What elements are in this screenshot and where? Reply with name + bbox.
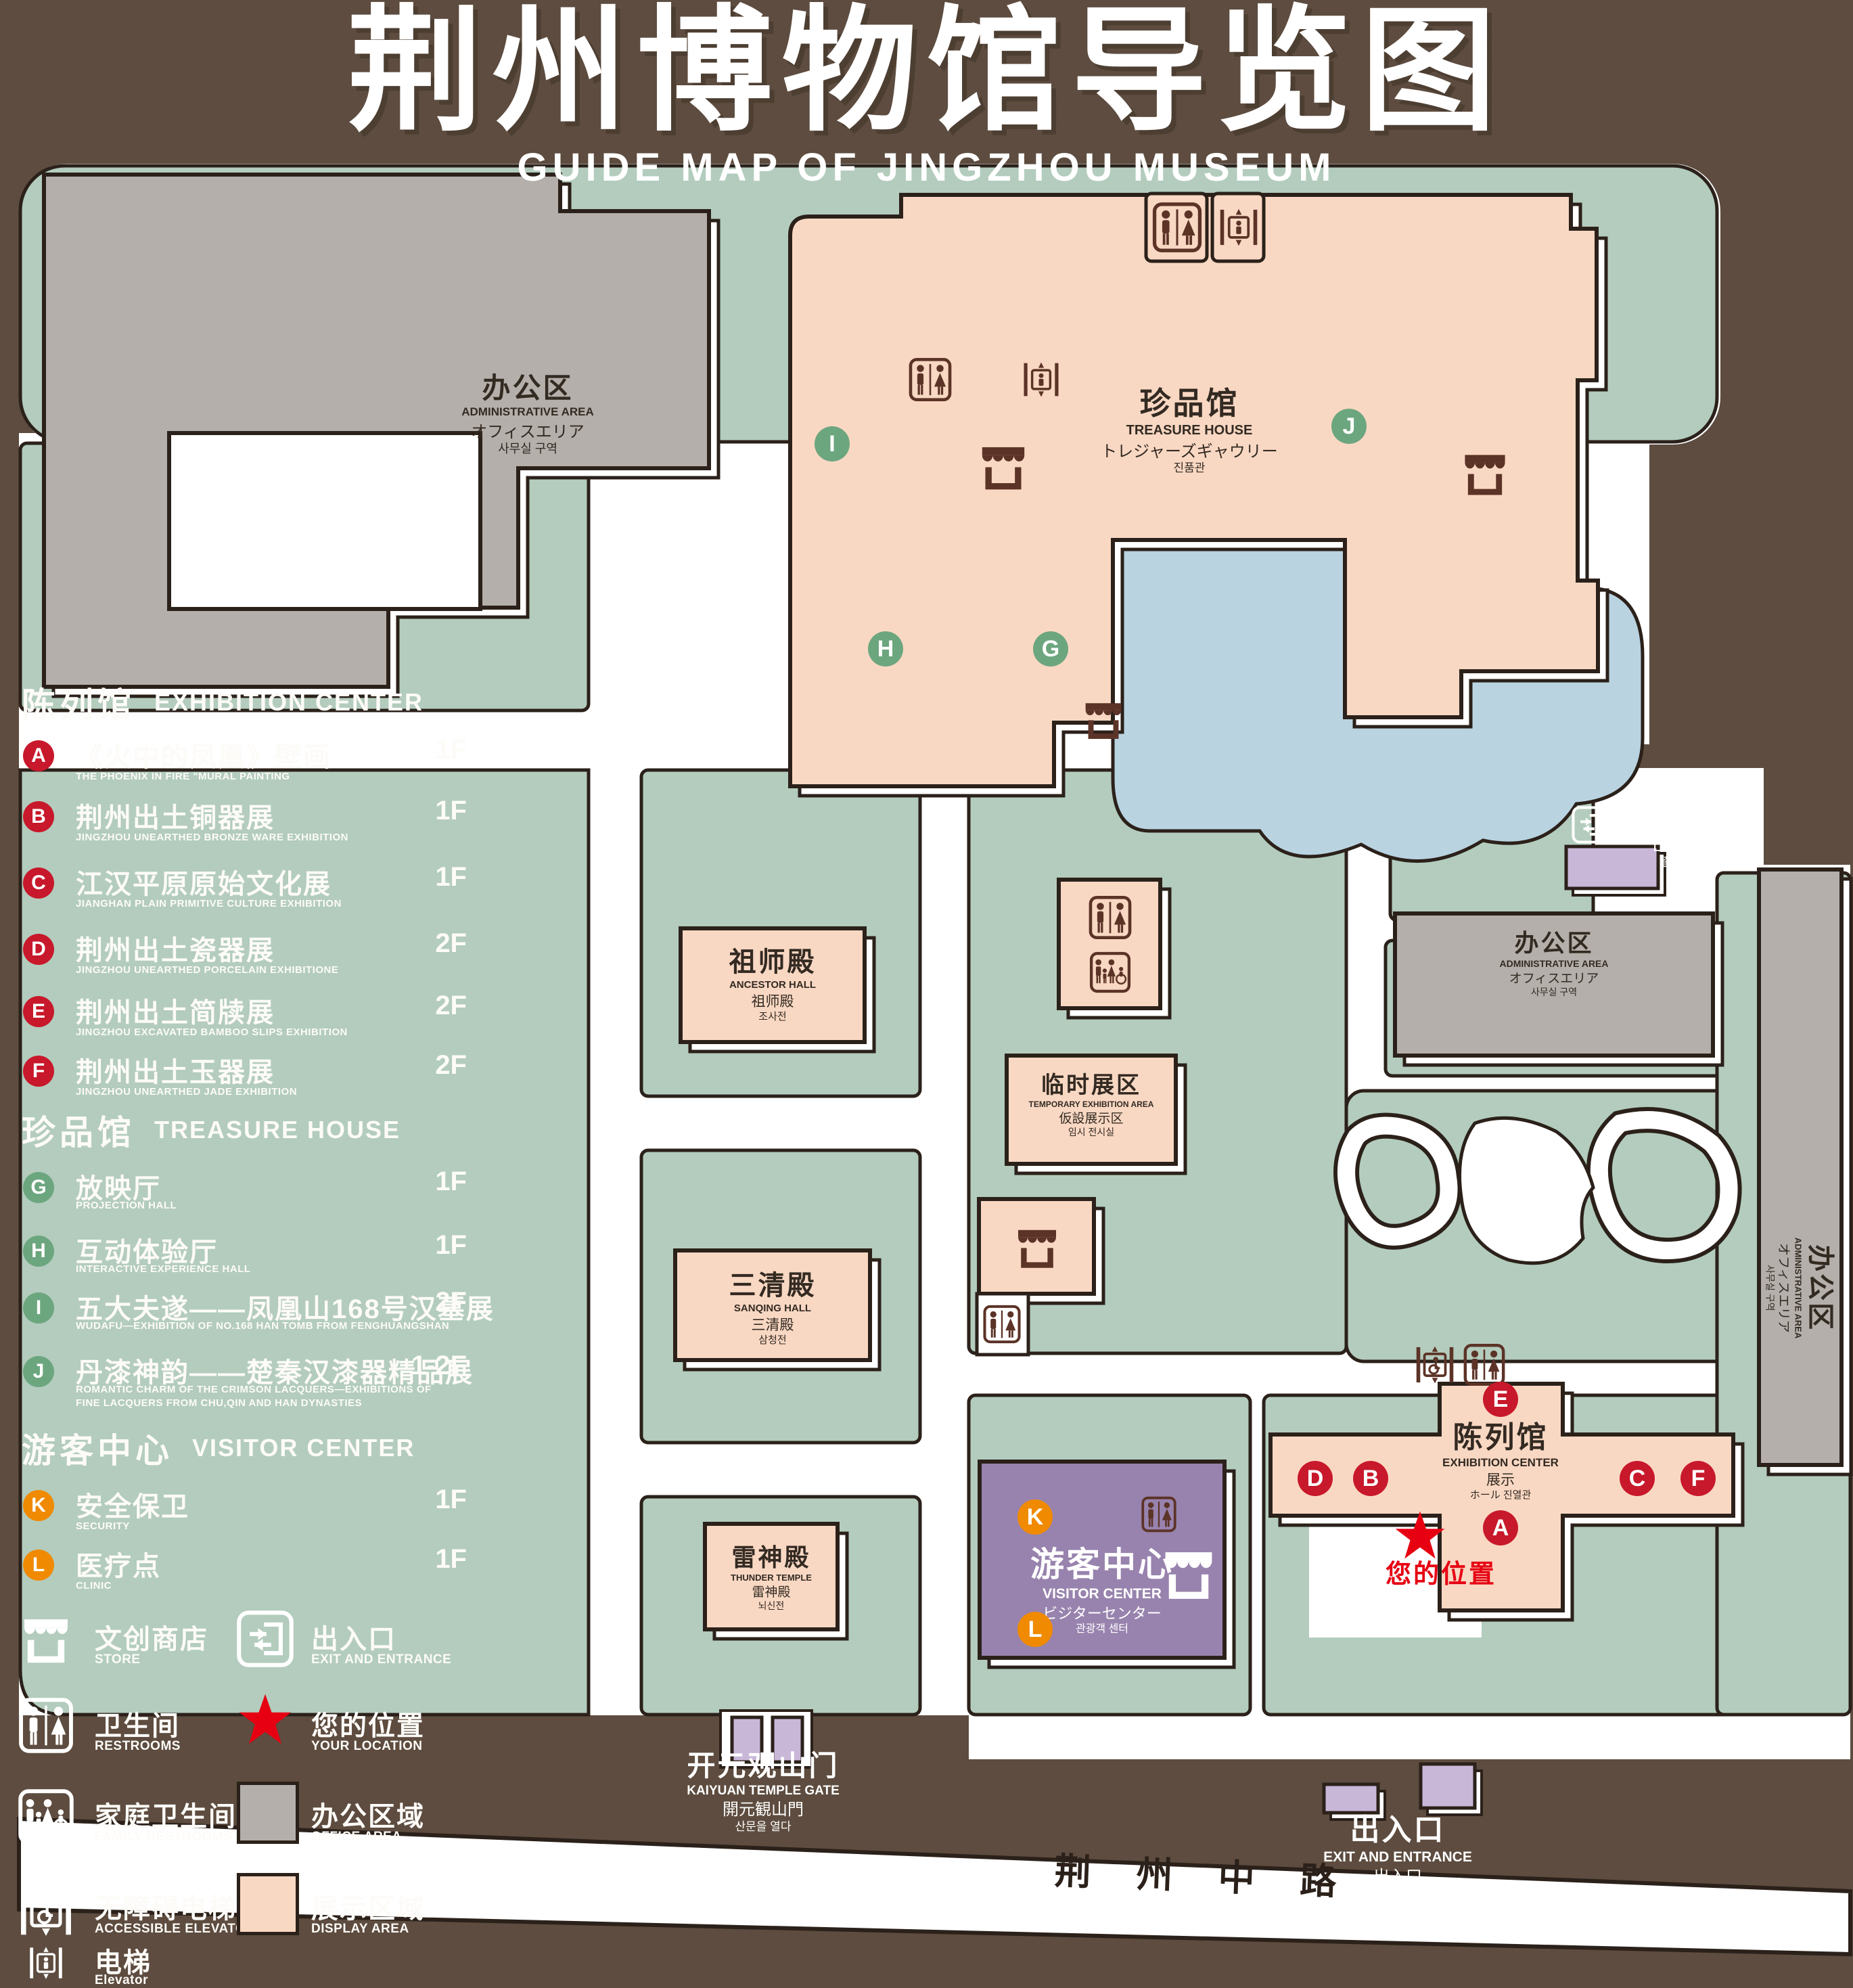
legend-restroom-en: RESTROOMS bbox=[95, 1739, 181, 1754]
legend-item-en: PROJECTION HALL bbox=[76, 1199, 455, 1213]
elevator-icon bbox=[1022, 357, 1061, 402]
legend-item-en: CLINIC bbox=[76, 1579, 455, 1593]
legend-section-visitor: 游客中心VISITOR CENTER bbox=[22, 1424, 415, 1472]
map-badge-J: J bbox=[1331, 409, 1367, 444]
restroom-icon bbox=[1141, 1493, 1177, 1536]
admin-mid-label: 办公区 ADMINISTRATIVE AREA オフィスエリア 사무실 구역 bbox=[1429, 928, 1679, 998]
legend-item-floor: 1F bbox=[386, 1485, 467, 1515]
restroom-icon bbox=[1151, 199, 1203, 256]
ancestor-hall-label: 祖师殿 ANCESTOR HALL 祖师殿 조사전 bbox=[681, 946, 865, 1023]
legend-item-zh: 荆州出土玉器展 bbox=[76, 1050, 275, 1089]
legend-item-zh: 荆州出土简牍展 bbox=[76, 991, 275, 1030]
map-badge-H: H bbox=[868, 631, 903, 667]
legend-display-zh: 展示区域 bbox=[311, 1887, 425, 1926]
legend-item-zh: 荆州出土瓷器展 bbox=[76, 928, 275, 968]
legend-item-en: JINGZHOU UNEARTHED JADE EXHIBITION bbox=[76, 1085, 455, 1099]
restroom-icon bbox=[982, 1301, 1022, 1348]
legend-item-zh: 《火中的凤凰》壁画 bbox=[76, 735, 331, 774]
legend-item-zh: 安全保卫 bbox=[76, 1485, 189, 1524]
legend-item-floor: 2F bbox=[386, 1287, 467, 1317]
legend-item-floor: 1F bbox=[386, 862, 467, 893]
legend-accessible-zh: 无障碍电梯 bbox=[95, 1887, 237, 1926]
legend-item-en: JINGZHOU UNEARTHED BRONZE WARE EXHIBITIO… bbox=[76, 831, 455, 844]
legend-item-zh: 荆州出土铜器展 bbox=[76, 796, 275, 835]
store-icon bbox=[1081, 697, 1126, 742]
legend-location-en: YOUR LOCATION bbox=[311, 1739, 422, 1754]
legend-item-floor: 2F bbox=[386, 1050, 467, 1081]
office-area-swatch bbox=[237, 1782, 299, 1844]
legend-item-floor: 1-2F bbox=[386, 1351, 467, 1381]
map-badge-G: G bbox=[1033, 631, 1068, 667]
legend-elevator-en: Elevator bbox=[95, 1973, 148, 1988]
legend-item-floor: 1F bbox=[386, 1544, 467, 1575]
legend-section-treasure: 珍品馆TREASURE HOUSE bbox=[22, 1106, 401, 1154]
exit-icon bbox=[1571, 805, 1610, 844]
legend-item-floor: 2F bbox=[386, 928, 467, 959]
thunder-temple-label: 雷神殿 THUNDER TEMPLE 雷神殿 뇌신전 bbox=[705, 1543, 838, 1612]
elevator-icon bbox=[18, 1945, 74, 1981]
accessible-elevator-icon bbox=[1414, 1340, 1456, 1390]
legend-badge-J: J bbox=[23, 1356, 54, 1387]
legend-item-floor: 2F bbox=[386, 991, 467, 1021]
legend-section-exhibition: 陈列馆EXHIBITION CENTER bbox=[22, 678, 424, 727]
legend-badge-C: C bbox=[23, 867, 54, 899]
restroom-icon bbox=[905, 357, 955, 402]
legend-item-en: JIANGHAN PLAIN PRIMITIVE CULTURE EXHIBIT… bbox=[76, 897, 455, 911]
page-title: 荆州博物馆导览图 bbox=[0, 4, 1853, 139]
legend-badge-I: I bbox=[23, 1292, 54, 1324]
legend-badge-F: F bbox=[23, 1056, 54, 1087]
kaiyuan-gate-label: 开元观山门 KAIYUAN TEMPLE GATE 開元観山門 산문을 열다 bbox=[648, 1748, 878, 1834]
legend-office-en: OFFICE AREA bbox=[311, 1830, 402, 1845]
map-badge-L: L bbox=[1017, 1612, 1053, 1647]
legend-item-floor: 1F bbox=[386, 735, 467, 765]
restroom-icon bbox=[1088, 890, 1133, 945]
family-restroom-icon bbox=[1089, 950, 1131, 995]
legend-store-en: STORE bbox=[95, 1652, 141, 1667]
legend-badge-K: K bbox=[23, 1490, 54, 1521]
legend-store-zh: 文创商店 bbox=[95, 1617, 208, 1656]
sanqing-hall-label: 三清殿 SANQING HALL 三清殿 삼청전 bbox=[675, 1269, 870, 1347]
elevator-icon bbox=[1218, 200, 1260, 254]
legend-item-en: SECURITY bbox=[76, 1520, 455, 1533]
legend-badge-H: H bbox=[23, 1236, 54, 1267]
legend-badge-E: E bbox=[23, 996, 54, 1027]
store-icon bbox=[1160, 1544, 1218, 1602]
exhibition-center-label: 陈列馆 EXHIBITION CENTER 展示 ホール 진열관 bbox=[1372, 1420, 1629, 1501]
legend-restroom-zh: 卫生间 bbox=[95, 1704, 180, 1743]
legend-item-floor: 1F bbox=[386, 796, 467, 826]
legend-badge-A: A bbox=[23, 740, 54, 771]
legend-item-en: JINGZHOU EXCAVATED BAMBOO SLIPS EXHIBITI… bbox=[76, 1026, 455, 1039]
map-badge-D: D bbox=[1298, 1461, 1333, 1496]
legend-exit-en: EXIT AND ENTRANCE bbox=[311, 1652, 451, 1667]
map-badge-E: E bbox=[1483, 1382, 1518, 1417]
map-badge-K: K bbox=[1017, 1499, 1053, 1535]
admin-east-label: 办公区 ADMINISTRATIVE AREA オフィスエリア 사무실 구역 bbox=[1764, 1146, 1837, 1430]
treasure-house-label: 珍品馆 TREASURE HOUSE トレジャーズギャウリー 진품관 bbox=[1054, 384, 1325, 476]
legend-display-en: DISPLAY AREA bbox=[311, 1922, 409, 1937]
map-badge-B: B bbox=[1353, 1461, 1388, 1496]
your-location-label: 您的位置 bbox=[1367, 1559, 1515, 1590]
store-icon bbox=[1460, 448, 1510, 498]
legend-badge-L: L bbox=[23, 1550, 54, 1581]
legend-exit-zh: 出入口 bbox=[311, 1617, 396, 1656]
legend-item-en: ROMANTIC CHARM OF THE CRIMSON LACQUERS—E… bbox=[76, 1383, 455, 1409]
map-badge-F: F bbox=[1680, 1461, 1716, 1496]
your-location-star bbox=[1394, 1510, 1446, 1562]
legend-item-zh: 江汉平原原始文化展 bbox=[76, 862, 331, 901]
legend-item-zh: 医疗点 bbox=[76, 1544, 161, 1583]
store-icon bbox=[977, 440, 1030, 493]
legend-item-en: JINGZHOU UNEARTHED PORCELAIN EXHIBITIONE bbox=[76, 964, 455, 977]
map-badge-A: A bbox=[1483, 1510, 1518, 1545]
legend-office-zh: 办公区域 bbox=[311, 1794, 425, 1834]
family-restroom-icon bbox=[18, 1786, 74, 1848]
header: 荆州博物馆导览图 GUIDE MAP OF JINGZHOU MUSEUM bbox=[0, 0, 1853, 190]
legend-family-zh: 家庭卫生间 bbox=[95, 1794, 237, 1834]
map-badge-C: C bbox=[1620, 1461, 1655, 1496]
legend-accessible-en: ACCESSIBLE ELEVATOR bbox=[95, 1922, 256, 1937]
map-badge-I: I bbox=[815, 426, 850, 461]
page-subtitle: GUIDE MAP OF JINGZHOU MUSEUM bbox=[0, 145, 1853, 190]
your-location-star bbox=[238, 1693, 292, 1747]
exit-icon bbox=[235, 1609, 295, 1669]
store-icon bbox=[18, 1612, 74, 1666]
display-area-swatch bbox=[237, 1873, 299, 1935]
temporary-exhibition-label: 临时展区 TEMPORARY EXHIBITION AREA 仮設展示区 임시 … bbox=[1007, 1072, 1176, 1138]
legend-item-floor: 1F bbox=[386, 1230, 467, 1261]
legend-location-zh: 您的位置 bbox=[311, 1704, 425, 1743]
legend-badge-D: D bbox=[23, 934, 54, 965]
admin-nw-label: 办公区 ADMINISTRATIVE AREA オフィスエリア 사무실 구역 bbox=[406, 371, 649, 457]
legend-item-en: INTERACTIVE EXPERIENCE HALL bbox=[76, 1263, 455, 1276]
legend-item-en: THE PHOENIX IN FIRE "MURAL PAINTING bbox=[76, 770, 455, 784]
legend-item-en: WUDAFU—EXHIBITION OF NO.168 HAN TOMB FRO… bbox=[76, 1319, 455, 1333]
legend-family-en: FAMILY RESTROOMS bbox=[95, 1830, 232, 1845]
legend-badge-G: G bbox=[23, 1172, 54, 1203]
legend-item-floor: 1F bbox=[386, 1167, 467, 1197]
store-icon bbox=[1013, 1223, 1061, 1271]
restroom-icon bbox=[18, 1692, 74, 1759]
legend-badge-B: B bbox=[23, 801, 54, 832]
accessible-elevator-icon bbox=[18, 1880, 74, 1941]
